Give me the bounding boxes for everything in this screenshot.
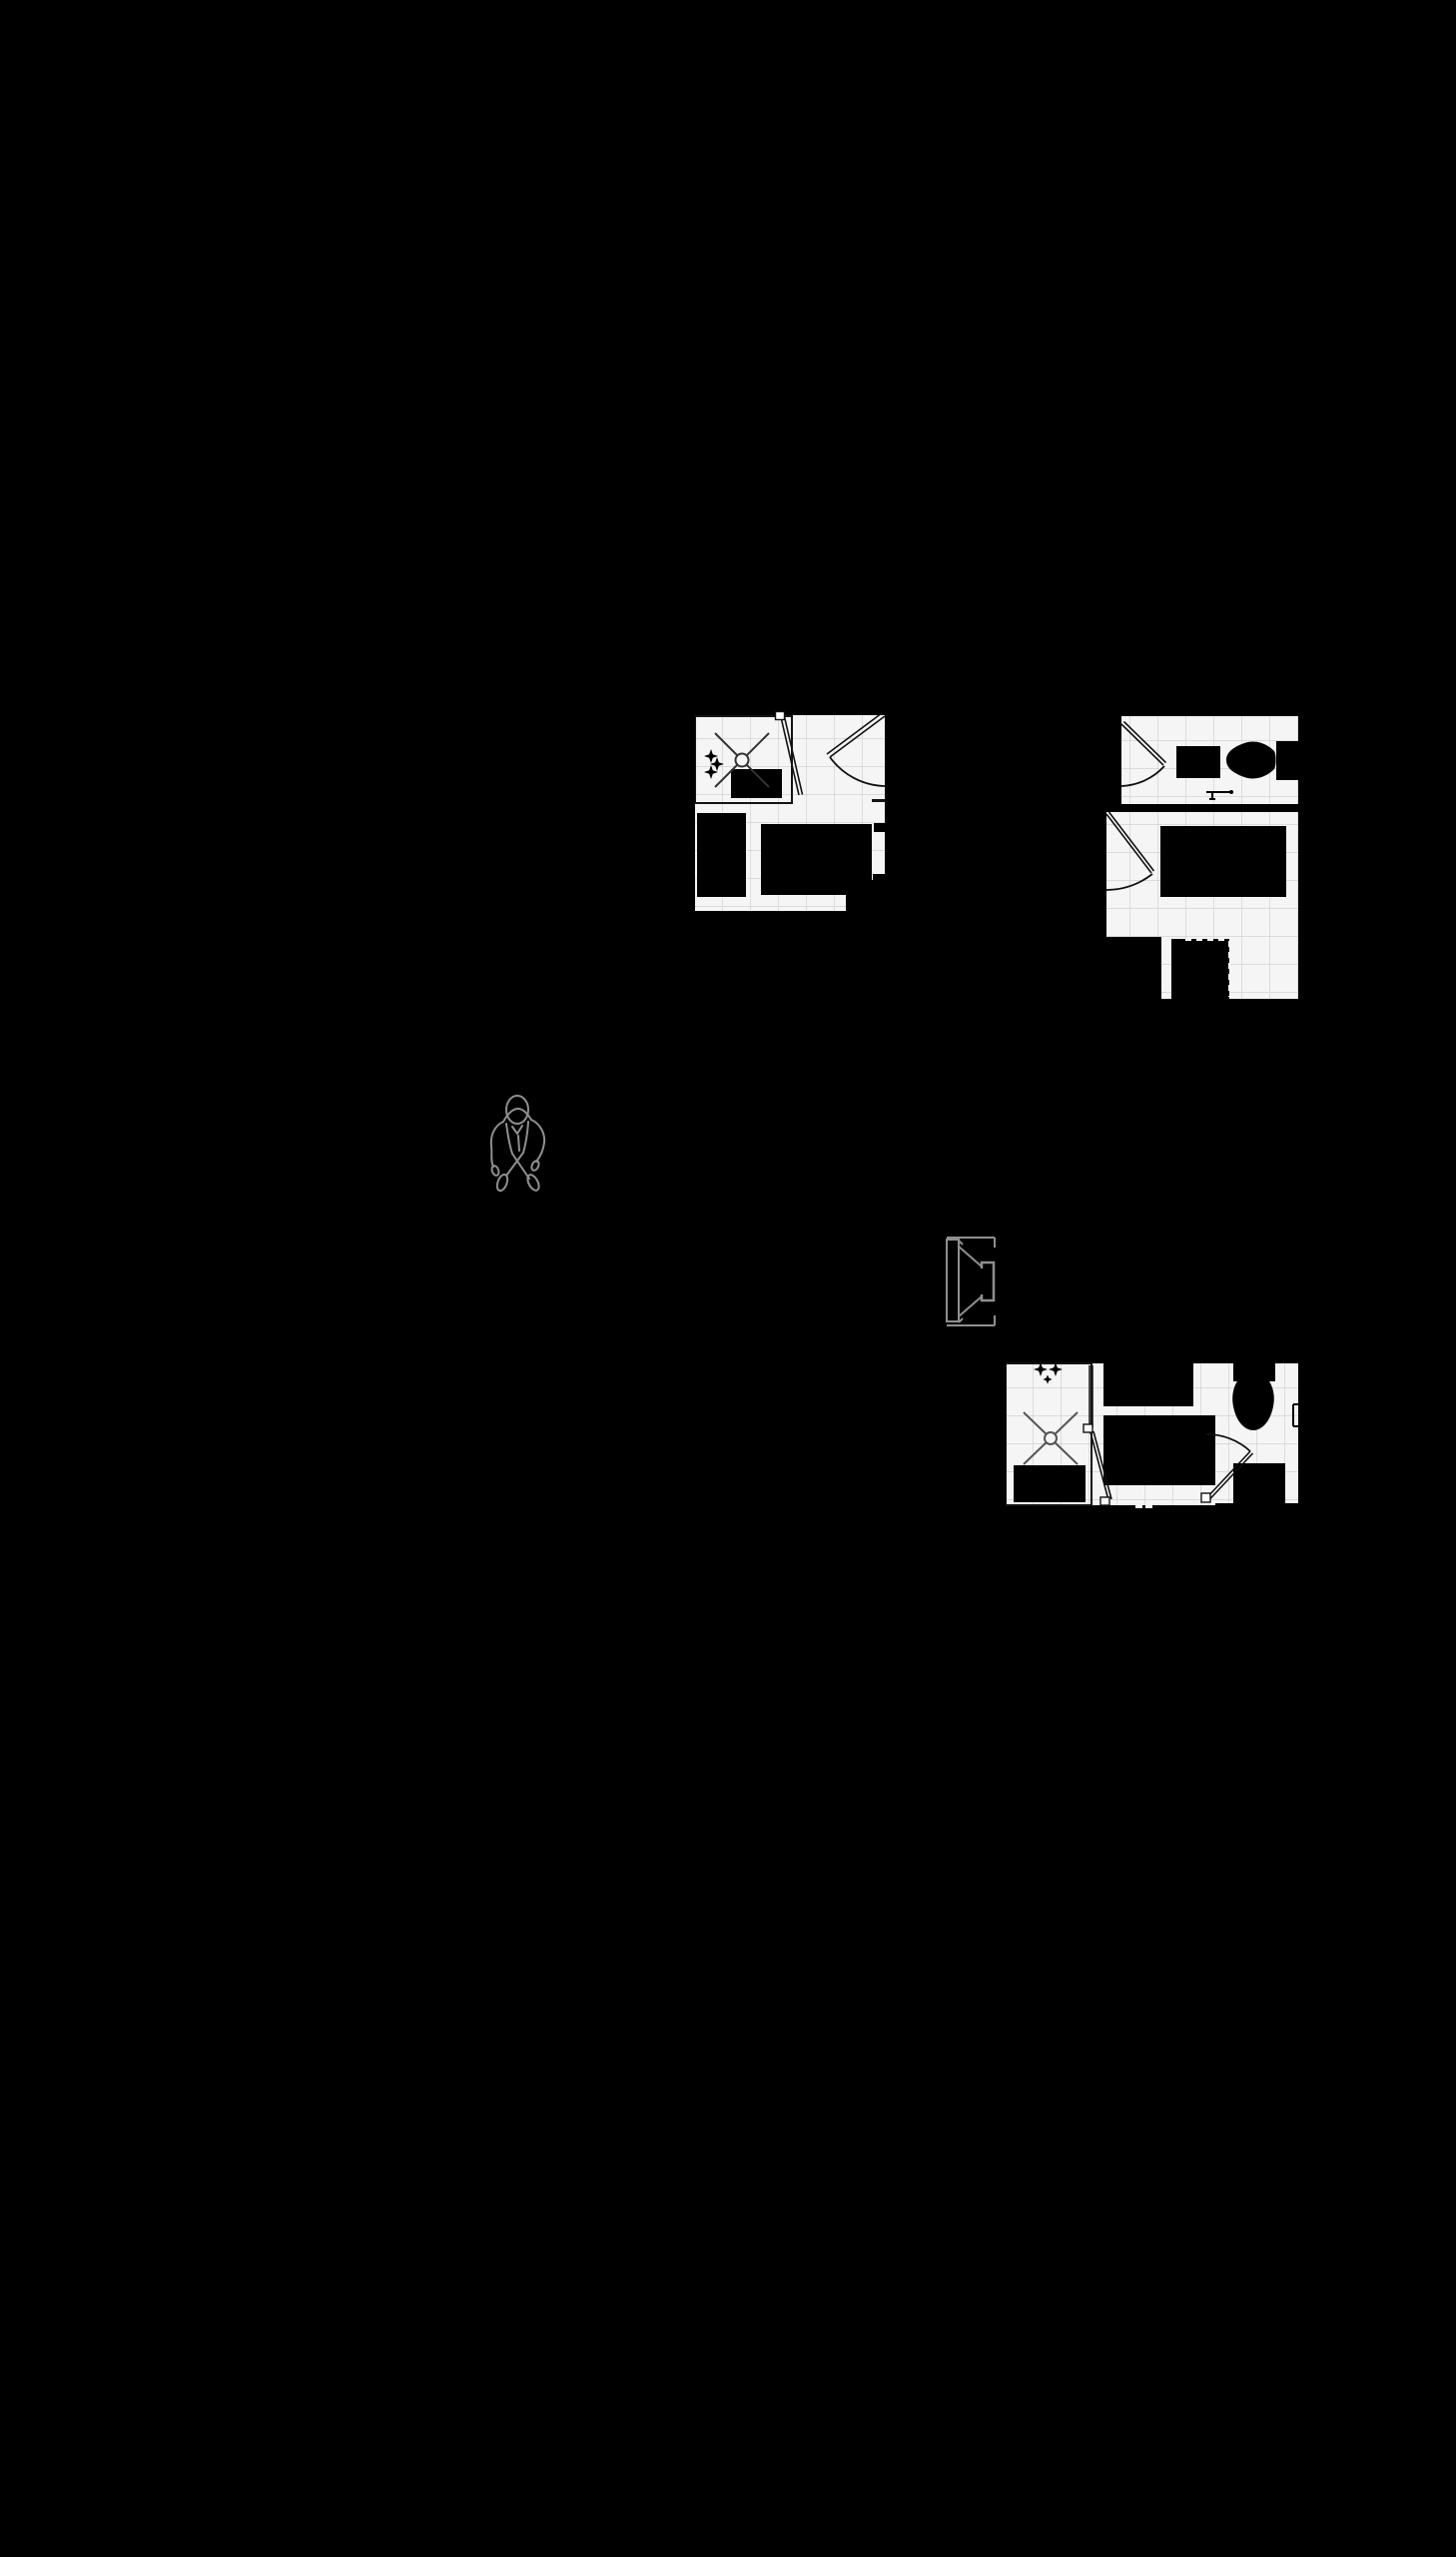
person-torso-right: [523, 1122, 528, 1153]
armchair-trapezoid: [959, 1247, 982, 1316]
storage-block: [1233, 1463, 1285, 1503]
door-jamb-notch: [874, 823, 885, 832]
person-top-view[interactable]: [483, 1091, 551, 1193]
threshold-dashes: [1135, 1505, 1152, 1508]
toilet-tank: [1233, 1363, 1275, 1381]
bathroom-plan-b-drawing: [1102, 713, 1299, 1001]
shower-mat: [1014, 1465, 1086, 1502]
bathroom-plan-a[interactable]: [695, 711, 885, 913]
sink-counter: [1176, 746, 1220, 778]
bathroom-plan-c[interactable]: [1006, 1360, 1300, 1510]
shower-cabin: [1171, 939, 1229, 999]
person-left-hand: [490, 1165, 499, 1177]
person-torso-left: [506, 1124, 512, 1154]
bathroom-plan-c-drawing: [1006, 1360, 1300, 1510]
vanity-counter: [1103, 1415, 1215, 1485]
armchair-symbol-drawing: [945, 1235, 999, 1328]
person-figure-drawing: [483, 1091, 551, 1193]
bathroom-plan-a-drawing: [695, 711, 885, 913]
person-collar: [512, 1126, 522, 1134]
entry-floor: [792, 715, 885, 816]
person-right-hand: [530, 1160, 540, 1172]
wall-stub: [872, 799, 885, 802]
person-left-arm: [491, 1122, 503, 1167]
corridor-floor: [1092, 1363, 1103, 1406]
armchair-outer-lines: [947, 1238, 995, 1325]
person-right-arm: [531, 1120, 544, 1162]
door-jamb-notch: [873, 874, 885, 884]
person-foot: [525, 1173, 541, 1192]
closet-block: [697, 813, 746, 897]
person-crease: [518, 1136, 519, 1151]
armchair-front-bracket: [982, 1263, 994, 1300]
vanity-counter: [761, 824, 872, 895]
bathroom-plan-b[interactable]: [1102, 713, 1299, 1001]
floorplan-canvas[interactable]: [0, 0, 1456, 2557]
person-shoulders: [503, 1109, 531, 1122]
armchair-symbol[interactable]: [945, 1235, 999, 1328]
bathtub: [1160, 826, 1286, 897]
armchair-back: [947, 1240, 959, 1321]
cistern-niche: [1276, 741, 1299, 780]
